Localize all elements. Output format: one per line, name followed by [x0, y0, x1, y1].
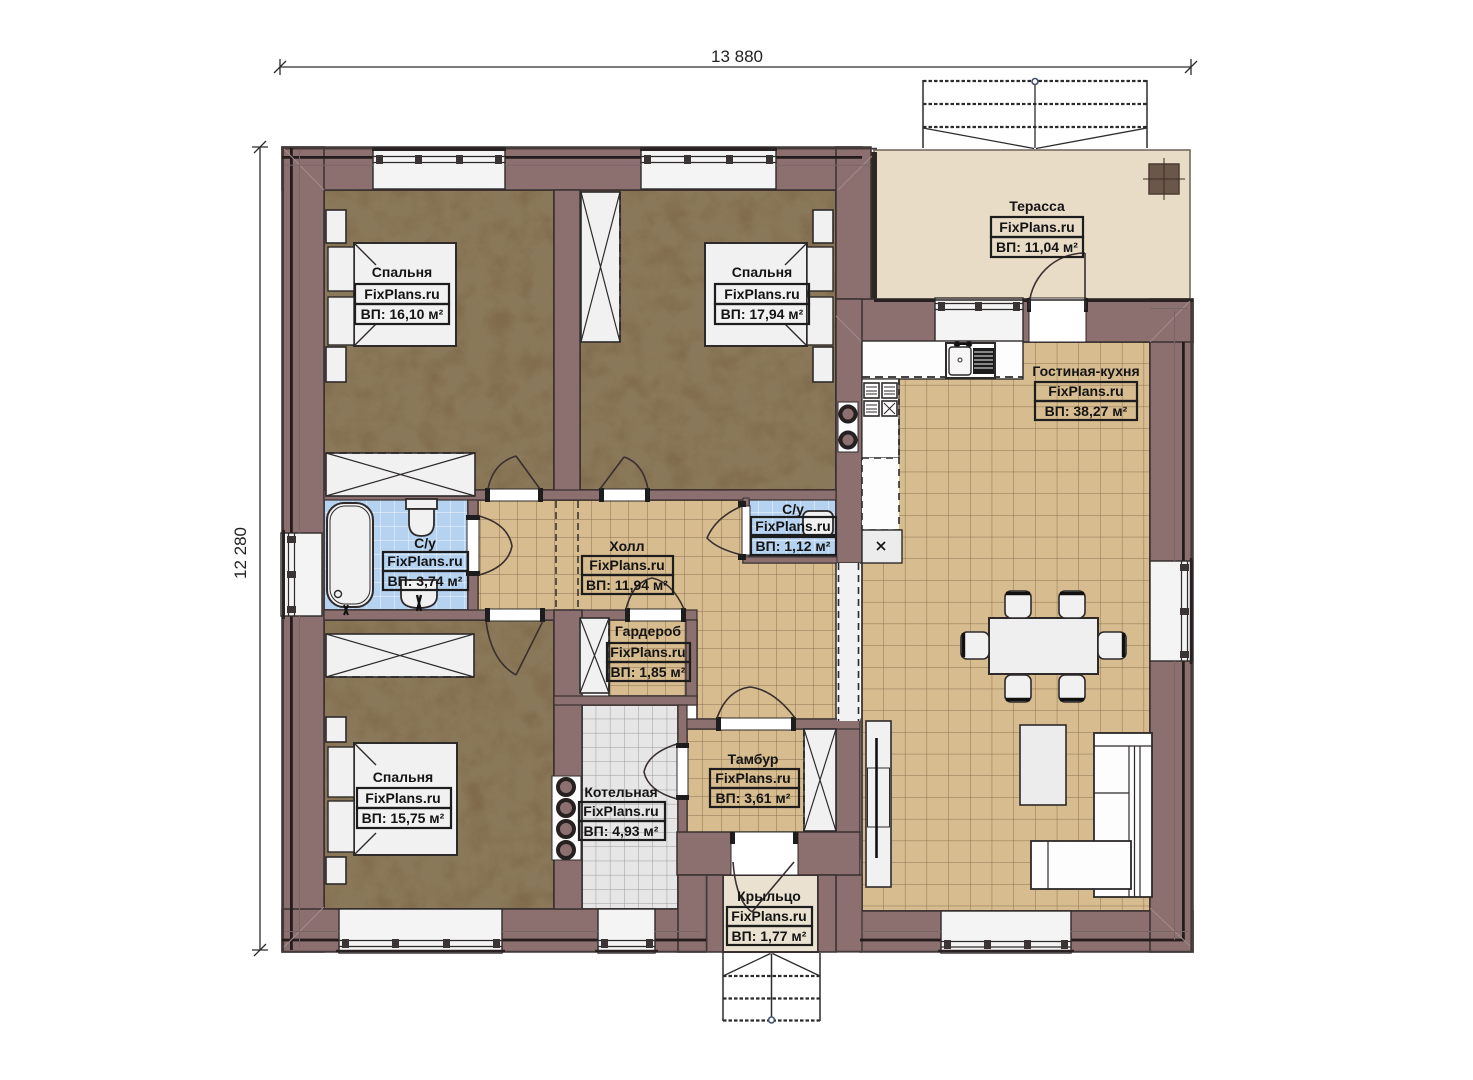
- svg-text:ВП: 1,12 м²: ВП: 1,12 м²: [756, 538, 831, 554]
- svg-text:Крыльцо: Крыльцо: [737, 888, 801, 904]
- svg-text:ВП: 11,04 м²: ВП: 11,04 м²: [996, 239, 1078, 255]
- svg-text:FixPlans.ru: FixPlans.ru: [610, 644, 685, 660]
- svg-text:ВП: 1,77 м²: ВП: 1,77 м²: [732, 928, 807, 944]
- svg-text:FixPlans.ru: FixPlans.ru: [364, 286, 439, 302]
- svg-text:Гостиная-кухня: Гостиная-кухня: [1032, 363, 1139, 379]
- svg-text:Спальня: Спальня: [372, 264, 432, 280]
- svg-text:FixPlans.ru: FixPlans.ru: [1048, 383, 1123, 399]
- svg-text:С/у: С/у: [414, 535, 436, 551]
- svg-text:FixPlans.ru: FixPlans.ru: [387, 553, 462, 569]
- svg-text:Тамбур: Тамбур: [728, 751, 779, 767]
- svg-text:FixPlans.ru: FixPlans.ru: [365, 790, 440, 806]
- svg-text:FixPlans.ru: FixPlans.ru: [724, 286, 799, 302]
- svg-text:Котельная: Котельная: [584, 784, 657, 800]
- svg-text:ВП: 17,94 м²: ВП: 17,94 м²: [721, 306, 804, 322]
- svg-text:ВП: 11,94 м²: ВП: 11,94 м²: [586, 577, 668, 593]
- svg-text:12 280: 12 280: [231, 527, 250, 579]
- svg-text:С/у: С/у: [782, 501, 804, 517]
- svg-text:FixPlans.ru: FixPlans.ru: [589, 557, 664, 573]
- svg-text:FixPlans.ru: FixPlans.ru: [755, 518, 830, 534]
- svg-text:13 880: 13 880: [711, 47, 763, 66]
- svg-text:Холл: Холл: [609, 538, 644, 554]
- svg-text:Спальня: Спальня: [373, 769, 433, 785]
- svg-text:Спальня: Спальня: [732, 264, 792, 280]
- svg-text:Терасса: Терасса: [1009, 198, 1065, 214]
- svg-text:ВП: 3,61 м²: ВП: 3,61 м²: [716, 790, 791, 806]
- svg-text:ВП: 3,74 м²: ВП: 3,74 м²: [388, 573, 463, 589]
- svg-text:FixPlans.ru: FixPlans.ru: [999, 219, 1074, 235]
- svg-text:ВП: 38,27 м²: ВП: 38,27 м²: [1045, 403, 1128, 419]
- svg-text:FixPlans.ru: FixPlans.ru: [583, 803, 658, 819]
- svg-text:ВП: 15,75 м²: ВП: 15,75 м²: [362, 810, 445, 826]
- svg-text:ВП: 4,93 м²: ВП: 4,93 м²: [584, 823, 659, 839]
- svg-text:Гардероб: Гардероб: [615, 623, 682, 639]
- svg-text:FixPlans.ru: FixPlans.ru: [715, 770, 790, 786]
- svg-text:ВП: 1,85 м²: ВП: 1,85 м²: [611, 664, 686, 680]
- svg-text:ВП: 16,10 м²: ВП: 16,10 м²: [361, 306, 444, 322]
- svg-text:FixPlans.ru: FixPlans.ru: [731, 908, 806, 924]
